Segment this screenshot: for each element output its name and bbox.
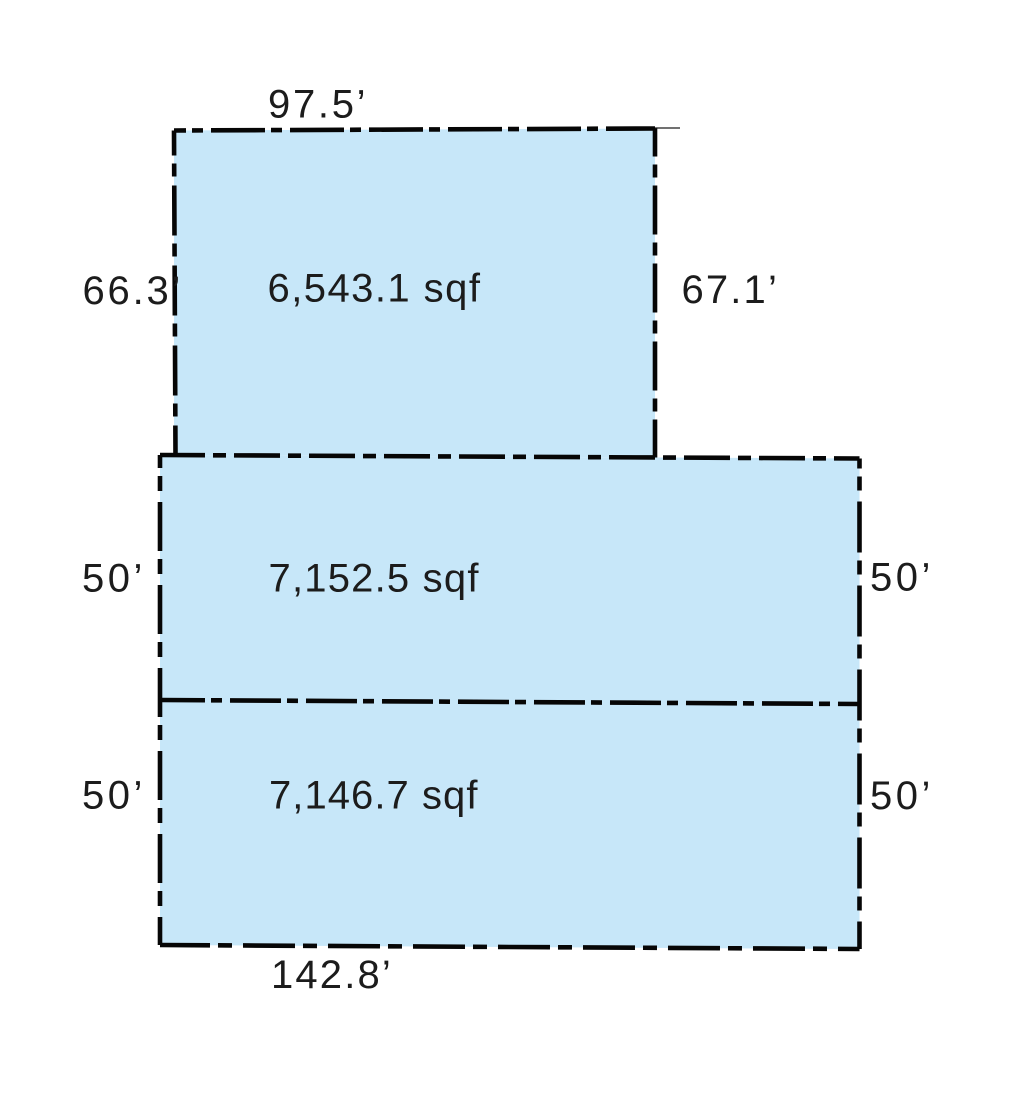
svg-text:66.3’: 66.3’ [83,269,184,313]
svg-text:7,152.5 sqf: 7,152.5 sqf [269,556,480,600]
svg-text:97.5’: 97.5’ [268,83,368,127]
svg-text:142.8’: 142.8’ [271,953,393,997]
svg-text:7,146.7 sqf: 7,146.7 sqf [269,774,478,818]
svg-text:50’: 50’ [82,774,146,818]
svg-text:50’: 50’ [82,556,146,600]
svg-text:50’: 50’ [870,556,934,600]
svg-text:6,543.1 sqf: 6,543.1 sqf [268,267,482,311]
svg-text:50’: 50’ [870,774,934,818]
svg-text:67.1’: 67.1’ [682,268,780,312]
